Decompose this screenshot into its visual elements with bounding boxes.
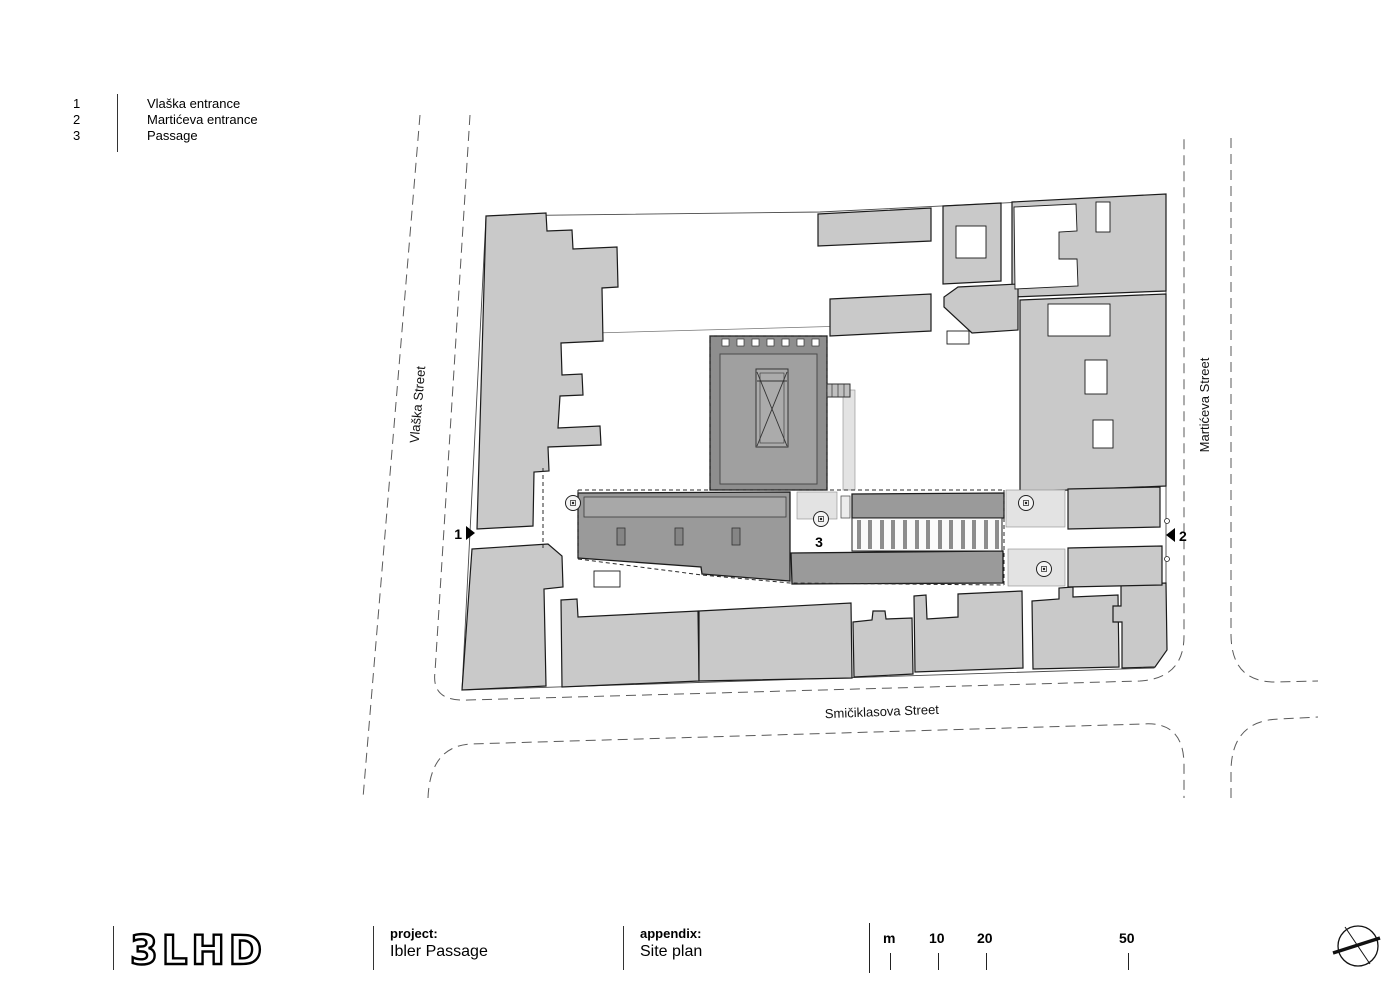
appendix-block: appendix: Site plan	[640, 926, 702, 962]
street-label-marticeva: Martićeva Street	[1197, 357, 1212, 452]
street-label-vlaska: Vlaška Street	[407, 365, 429, 444]
project-block: project: Ibler Passage	[390, 926, 488, 962]
tree-icon	[566, 496, 581, 511]
logo-text: 3LHD	[130, 928, 266, 972]
project-building-east-south	[791, 551, 1003, 584]
scale-tick-label: 20	[977, 930, 993, 946]
project-building-east-north	[852, 493, 1004, 518]
tree-icon	[1019, 496, 1034, 511]
context-building	[1068, 487, 1160, 529]
scale-tick-label: 50	[1119, 930, 1135, 946]
titleblock-divider	[113, 926, 114, 970]
tree-icon	[814, 512, 829, 527]
appendix-name: Site plan	[640, 942, 702, 962]
north-arrow-icon	[1330, 918, 1390, 978]
project-label: project:	[390, 926, 488, 942]
scale-tick	[986, 953, 987, 970]
scale-bar-origin	[869, 923, 870, 973]
context-building	[699, 603, 852, 681]
scale-tick	[1128, 953, 1129, 970]
hall-skylight	[756, 369, 788, 447]
marker-entrance-2: 2	[1179, 528, 1187, 544]
scale-unit: m	[883, 930, 895, 946]
marker-passage-3: 3	[815, 534, 823, 550]
scale-tick	[890, 953, 891, 970]
site-plan: 1 2 3 Vlaška Street Martićeva Street Smi…	[0, 0, 1400, 990]
titleblock-divider	[373, 926, 374, 970]
drawing-sheet: 1 Vlaška entrance 2 Martićeva entrance 3…	[0, 0, 1400, 990]
arrow-left-icon	[1166, 528, 1175, 542]
scale-tick-label: 10	[929, 930, 945, 946]
tree-icon	[1037, 562, 1052, 577]
context-building	[818, 208, 931, 246]
logo-3lhd: 3LHD	[128, 926, 288, 972]
context-building	[830, 294, 931, 336]
hall-bridge-link	[827, 384, 850, 397]
pergola	[852, 518, 1002, 551]
scale-bar: m 10 20 50	[869, 922, 1169, 978]
street-label-smiciklasova: Smičiklasova Street	[825, 702, 940, 721]
appendix-label: appendix:	[640, 926, 702, 942]
project-name: Ibler Passage	[390, 942, 488, 962]
context-building	[1068, 546, 1162, 587]
scale-tick	[938, 953, 939, 970]
context-building	[853, 611, 913, 677]
marker-entrance-1: 1	[454, 526, 462, 542]
titleblock-divider	[623, 926, 624, 970]
